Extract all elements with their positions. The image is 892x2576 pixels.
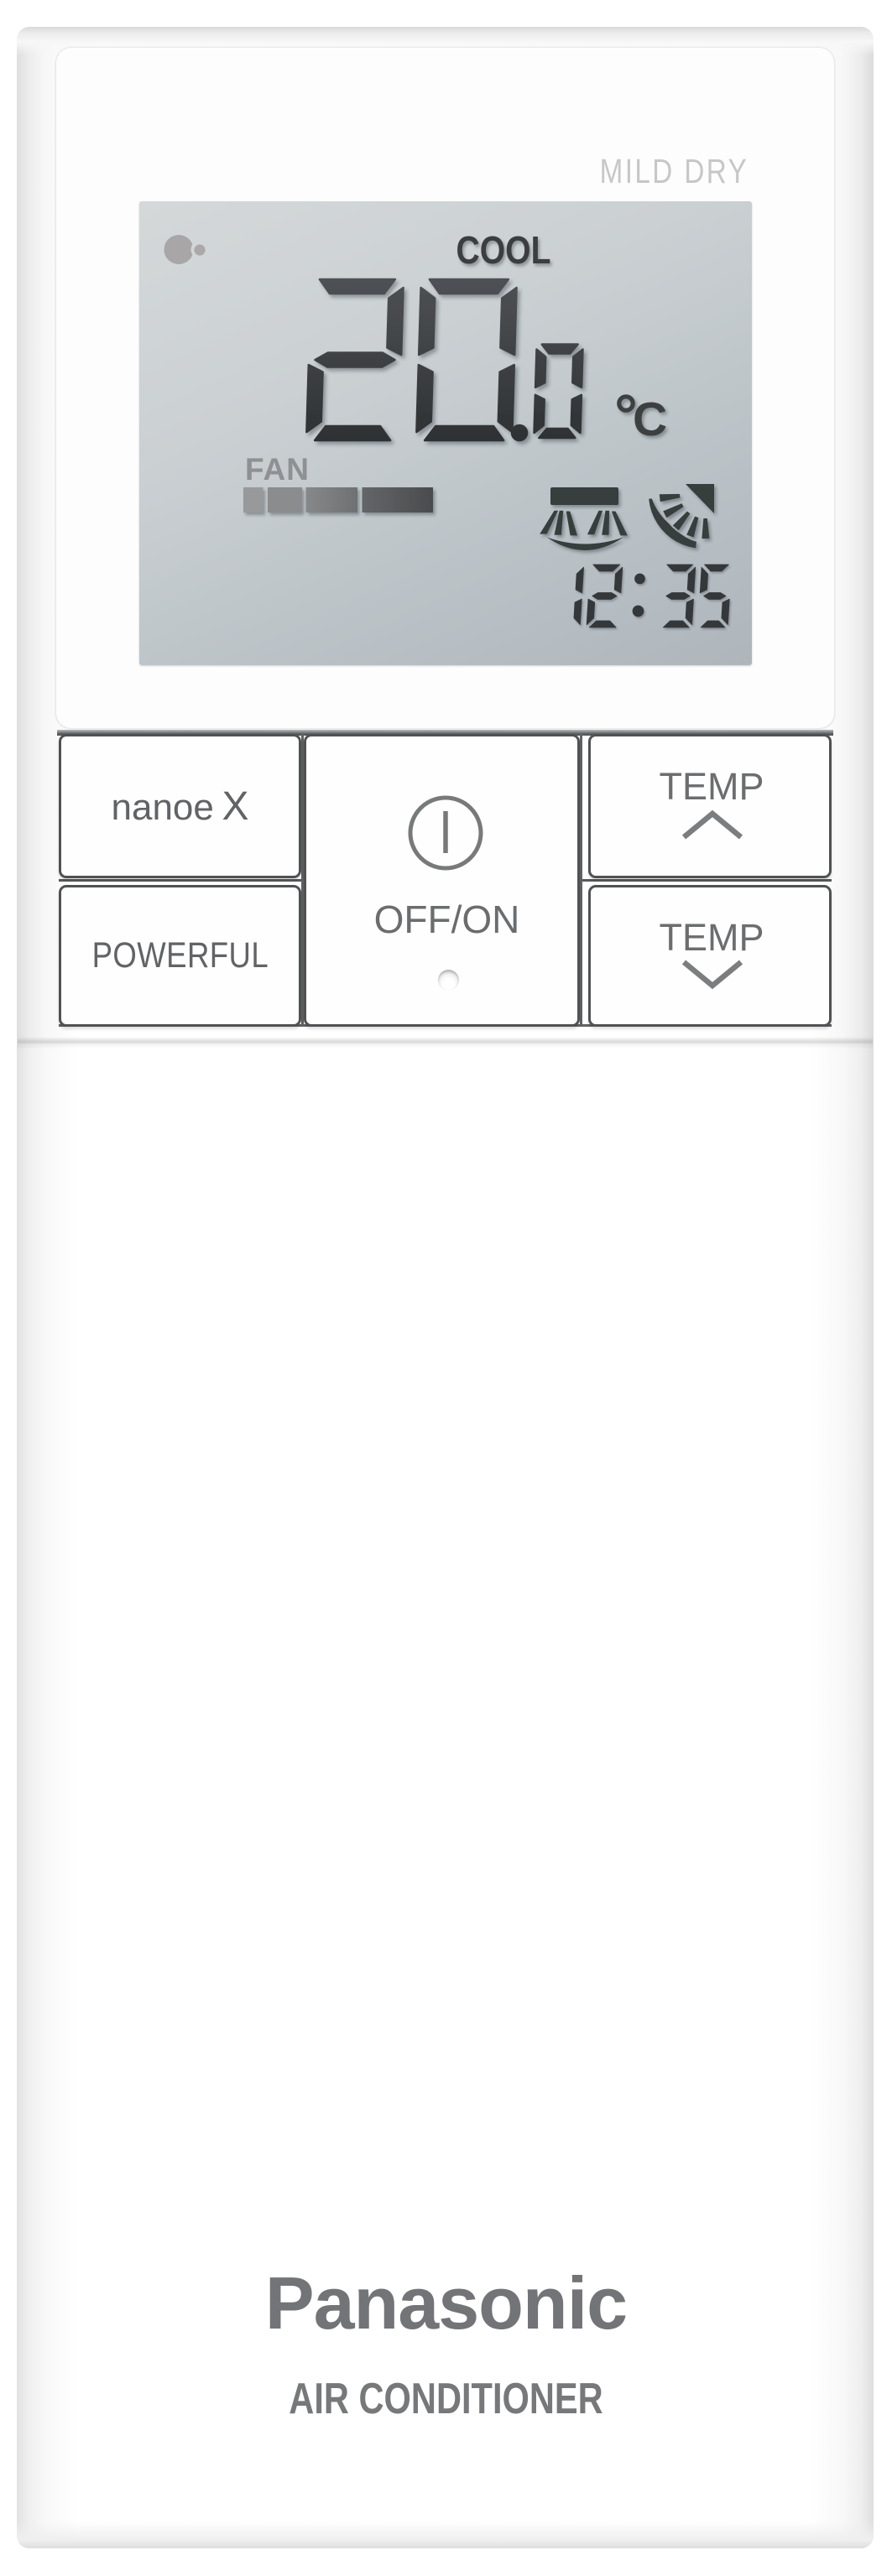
svg-text:COOL: COOL <box>456 229 551 273</box>
svg-text:FAN: FAN <box>245 452 310 487</box>
svg-text:C: C <box>633 393 667 446</box>
